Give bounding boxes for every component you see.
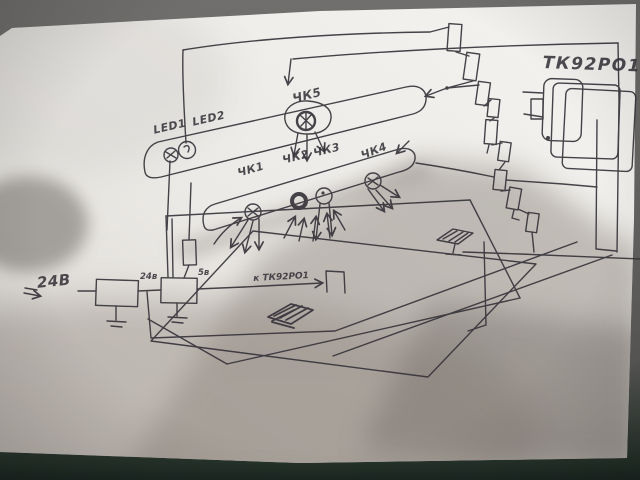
photo-of-hand-drawn-schematic: LED1 LED2 ЧК5 ЧК1 ЧК2 ЧК3 ЧК4 ТК92РО1 24…	[0, 0, 640, 480]
photo-vignette	[0, 0, 640, 480]
